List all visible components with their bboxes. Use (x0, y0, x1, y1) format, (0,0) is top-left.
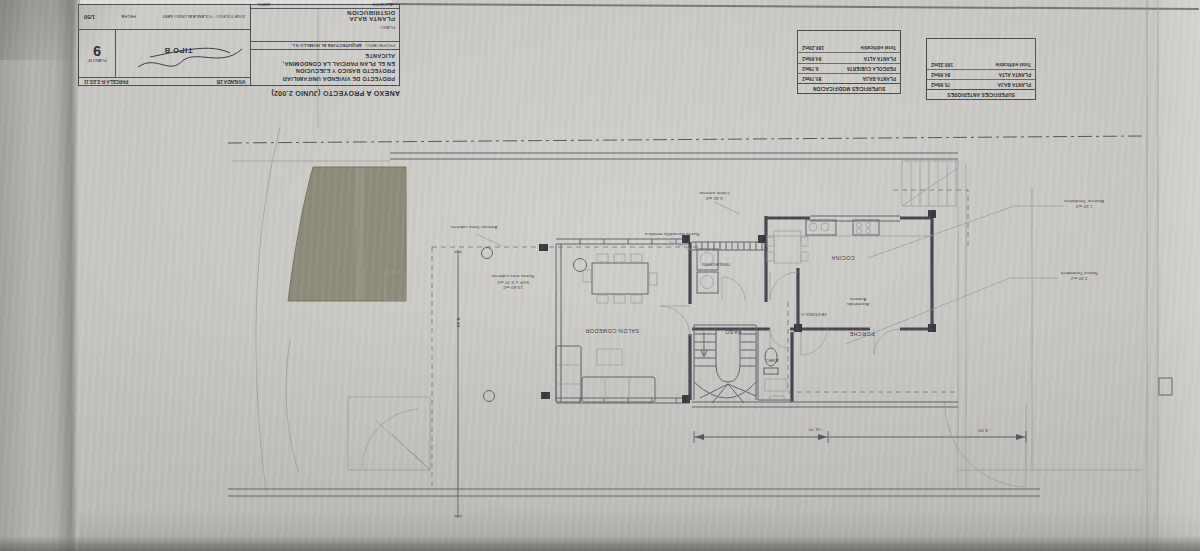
photographed-plan-sheet: ANEXO A PROYECTO (JUNIO 2.002) PROYECTO … (0, 0, 1200, 551)
paper-bottom-shadow (0, 536, 1200, 551)
paper-grain-overlay (0, 0, 1200, 551)
